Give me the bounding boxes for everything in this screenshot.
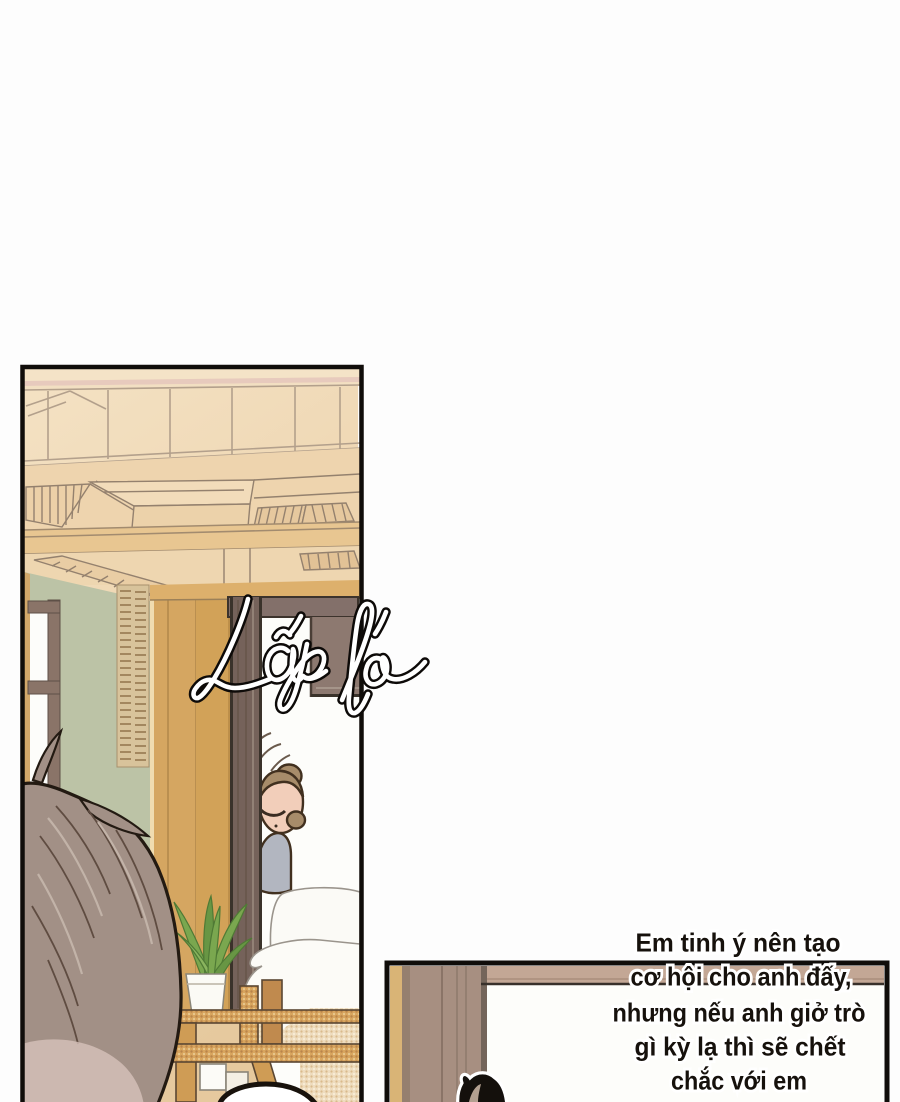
svg-text:gì kỳ lạ thì sẽ chết: gì kỳ lạ thì sẽ chết: [635, 1032, 846, 1062]
svg-text:cơ hội cho anh đấy,: cơ hội cho anh đấy,: [631, 962, 852, 992]
svg-text:nhưng nếu anh giở trò: nhưng nếu anh giở trò: [613, 998, 866, 1028]
svg-text:Em tinh ý nên tạo: Em tinh ý nên tạo: [636, 928, 841, 958]
svg-text:chắc với em: chắc với em: [671, 1066, 807, 1096]
